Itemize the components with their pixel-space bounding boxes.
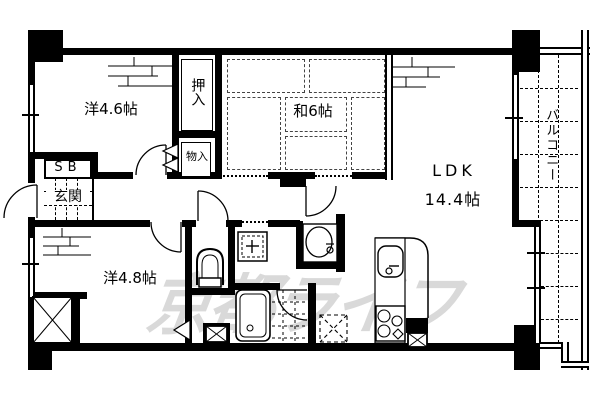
bathroom-floor-tiles <box>272 290 306 341</box>
kitchen-counter <box>375 238 428 343</box>
label-monoire: 物入 <box>183 151 211 163</box>
label-balcony: バルコニー <box>543 108 557 208</box>
washing-machine-pan <box>238 232 267 261</box>
floor-plan: 京都ライフ <box>0 0 600 400</box>
label-western1: 洋4.6帖 <box>66 101 156 118</box>
washbasin <box>303 224 337 262</box>
label-oshiire: 押入 <box>189 78 204 133</box>
label-western2: 洋4.8帖 <box>85 270 175 287</box>
door-arc-west1 <box>136 145 166 175</box>
label-japanese: 和6帖 <box>278 103 348 120</box>
label-ldk: LDK <box>424 162 484 180</box>
monoire-fold-door <box>163 158 178 172</box>
pipe-space-x-kitchen <box>408 333 427 347</box>
label-ldk-size: 14.4帖 <box>408 191 498 209</box>
wall-hatch-west1 <box>108 57 172 86</box>
pipe-space-x-toilet <box>206 326 227 342</box>
door-arc-ldk <box>306 186 336 216</box>
wall-hatch-west2 <box>43 228 91 255</box>
bathtub <box>236 290 270 341</box>
monoire-fold-door <box>163 144 178 158</box>
toilet <box>197 249 223 287</box>
entry-door-arc <box>4 185 37 218</box>
pipe-space-x-large <box>33 297 72 343</box>
label-shoebox: SB <box>48 161 88 175</box>
wall-hatch-ldk <box>393 57 455 87</box>
closet-fold-door-west2 <box>174 320 190 340</box>
door-arc-west2 <box>151 222 181 252</box>
underfloor-storage-hatch <box>320 315 347 342</box>
label-genkan: 玄関 <box>46 190 90 205</box>
folding-door-marks <box>163 144 190 340</box>
door-arc-toilet <box>198 191 228 221</box>
door-arc-bath <box>277 290 307 320</box>
